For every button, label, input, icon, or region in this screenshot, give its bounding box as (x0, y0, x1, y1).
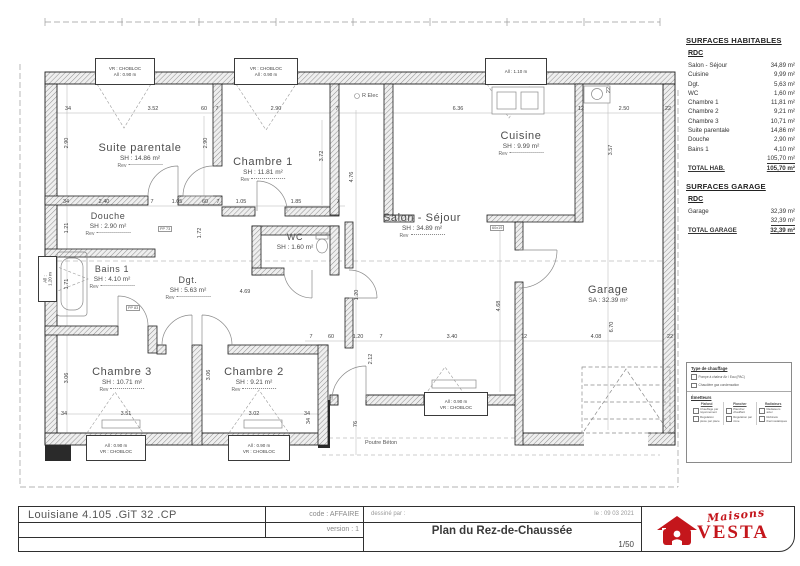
dim-label: 2.90 (64, 138, 70, 149)
house-icon (657, 516, 697, 548)
dim-label: 60 (201, 106, 207, 112)
room-name: Salon - Séjour (383, 212, 461, 224)
rev-label: Rev (241, 177, 250, 183)
rev-label: Rev (499, 151, 508, 157)
dim-label: 1.71 (64, 279, 70, 290)
dim-label: 34 (63, 199, 69, 205)
elec-panel-marker (355, 94, 360, 99)
checkbox-icon (691, 374, 697, 380)
surface-row: Garage32,39 m² (686, 207, 795, 216)
dim-label: 4.69 (240, 289, 251, 295)
room-name: Bains 1 (90, 263, 135, 275)
title-block: Louisiane 4.105 .GiT 32 .CP code : AFFAI… (18, 506, 795, 552)
room-cuisine: Cuisine SH : 9.99 m² Rev (499, 130, 544, 157)
surfaces-floor: RDC (688, 50, 795, 57)
checkbox-icon (726, 408, 732, 414)
room-chambre-1: Chambre 1 SH : 11.81 m² Rev (233, 156, 293, 183)
legend-column: Plafond Chauffage par rayonnement Régula… (691, 402, 720, 425)
dim-label: 7 (336, 199, 339, 205)
window-salon: All : 0.90 m VR : CHOBLOC (424, 392, 488, 416)
room-area: SH : 9.99 m² (499, 143, 544, 150)
window-sill-label: All : 0.90 m (255, 72, 278, 77)
room-area: SA : 32.39 m² (588, 297, 628, 304)
room-area: SH : 1.60 m² (277, 244, 313, 251)
room-chambre-3: Chambre 3 SH : 10.71 m² Rev (92, 366, 152, 393)
checkbox-icon (759, 408, 765, 414)
room-area: SH : 2.90 m² (86, 223, 131, 230)
dim-label: 3.52 (148, 106, 159, 112)
surfaces-title: SURFACES HABITABLES (686, 36, 795, 45)
surfaces-panel: SURFACES HABITABLES RDC Salon - Séjour34… (686, 36, 795, 235)
room-name: Chambre 1 (233, 156, 293, 168)
surface-row: Chambre 111,81 m² (686, 98, 795, 107)
door-tag: PP 83 (126, 305, 140, 311)
dim-label: 2.90 (271, 106, 282, 112)
room-name: Garage (588, 284, 628, 296)
dim-label: 2.12 (368, 354, 374, 365)
dim-label: 3.40 (447, 334, 458, 340)
emitters-title: Émetteurs (691, 395, 787, 400)
room-name: Suite parentale (99, 142, 182, 154)
dim-label: 1.20 (354, 290, 360, 301)
room-degagement: Dgt. SH : 5.63 m² Rev (166, 274, 211, 301)
affair-code: code : AFFAIRE (269, 511, 359, 518)
dim-label: 3.51 (121, 411, 132, 417)
heating-option: Pompe à chaleur Air / Eau (PAC) (691, 374, 787, 380)
rev-label: Rev (100, 387, 109, 393)
dim-label: 22 (665, 106, 671, 112)
room-name: Dgt. (166, 274, 211, 286)
garage-door-opening (584, 431, 648, 447)
surface-row: Salon - Séjour34,89 m² (686, 61, 795, 70)
dim-label: 4.76 (349, 172, 355, 183)
window-sill-label: All : 1.10 m (505, 69, 528, 74)
dim-label: 1.21 (64, 223, 70, 234)
room-wc: WC SH : 1.60 m² (277, 231, 313, 251)
window-sill-label: All : 0.90 m (445, 399, 468, 404)
dim-label: 3.72 (319, 151, 325, 162)
dim-label: 34 (65, 106, 71, 112)
rev-label: Rev (400, 233, 409, 239)
dim-label: 3.02 (249, 411, 260, 417)
garage-surfaces-title: SURFACES GARAGE (686, 182, 795, 191)
dim-label: 2.50 (619, 106, 630, 112)
surfaces-total: TOTAL HAB.105,70 m² (686, 164, 795, 173)
legend-column: Plancher Plancher chauffant Régulation p… (723, 402, 753, 425)
dim-label: 34 (61, 411, 67, 417)
rev-label: Rev (118, 163, 127, 169)
rev-label: Rev (86, 231, 95, 237)
window-shutter-label: VR : CHOBLOC (250, 66, 282, 71)
window-suite: VR : CHOBLOC All : 0.90 m (95, 58, 155, 85)
dim-label: 60 (202, 199, 208, 205)
dim-label: 7 (215, 106, 218, 112)
room-area: SH : 34.89 m² (383, 225, 461, 232)
surface-row: Chambre 310,71 m² (686, 117, 795, 126)
room-area: SH : 9.21 m² (224, 379, 284, 386)
dim-label: 1.05 (236, 199, 247, 205)
dim-label: 3.06 (64, 373, 70, 384)
room-name: Chambre 2 (224, 366, 284, 378)
legend-column: Radiateurs Radiateurs acier Robinets the… (756, 402, 787, 425)
dim-label: 1.72 (197, 228, 203, 239)
window-shutter-label: VR : CHOBLOC (100, 449, 132, 454)
room-area: SH : 11.81 m² (233, 169, 293, 176)
garage-door (582, 367, 670, 433)
window-sill-label: All : 0.90 m (114, 72, 137, 77)
dim-label: 22 (606, 87, 612, 93)
surfaces-subtotal: 105,70 m² (686, 154, 795, 164)
drawn-by-label: dessiné par : (371, 511, 405, 517)
room-name: WC (277, 231, 313, 243)
date-label: le : 09 03 2021 (519, 511, 634, 517)
scale-label: 1/50 (579, 540, 634, 549)
vesta-logo: Maisons VESTA (649, 510, 789, 550)
window-chambre3: All : 0.90 m VR : CHOBLOC (86, 435, 146, 461)
surface-row: Cuisine9,99 m² (686, 70, 795, 79)
version-label: version : 1 (269, 526, 359, 533)
dim-label: 3.06 (206, 370, 212, 381)
room-area: SH : 4.10 m² (90, 276, 135, 283)
surface-row: Bains 14,10 m² (686, 145, 795, 154)
dim-label: 7 (335, 106, 338, 112)
dim-label: 6.36 (453, 106, 464, 112)
surface-row: Chambre 29,21 m² (686, 107, 795, 116)
dim-label: 4.08 (591, 334, 602, 340)
logo-brand-text: VESTA (697, 522, 769, 544)
room-salon-sejour: Salon - Séjour SH : 34.89 m² Rev (383, 212, 461, 239)
room-name: Chambre 3 (92, 366, 152, 378)
dim-label: 4.68 (496, 301, 502, 312)
window-sill-label: All : 0.90 m (248, 443, 271, 448)
dim-label: 76 (353, 421, 359, 427)
surface-row: Dgt.5,63 m² (686, 80, 795, 89)
sheet-title: Plan du Rez-de-Chaussée (363, 525, 641, 537)
room-suite-parentale: Suite parentale SH : 14.86 m² Rev (99, 142, 182, 169)
window-bains: All : 1.20 m (38, 256, 57, 302)
dim-label: 7 (379, 334, 382, 340)
room-douche: Douche SH : 2.90 m² Rev (86, 210, 131, 237)
room-bains-1: Bains 1 SH : 4.10 m² Rev (90, 263, 135, 290)
dim-label: 34 (304, 411, 310, 417)
dim-label: 3.57 (608, 145, 614, 156)
dim-label: 6.70 (609, 322, 615, 333)
heating-option: Chaudière gaz condensation (691, 383, 787, 389)
surface-row: WC1,60 m² (686, 89, 795, 98)
surface-row: Suite parentale14,86 m² (686, 126, 795, 135)
window-chambre2: All : 0.90 m VR : CHOBLOC (228, 435, 290, 461)
kitchen-sink (492, 87, 544, 114)
checkbox-icon (693, 408, 699, 414)
room-area: SH : 14.86 m² (99, 155, 182, 162)
project-name: Louisiane 4.105 .GiT 32 .CP (28, 509, 177, 521)
room-garage: Garage SA : 32.39 m² (588, 284, 628, 304)
garage-surfaces-total: TOTAL GARAGE32,39 m² (686, 226, 795, 235)
bathtub (57, 252, 87, 316)
toilet (316, 233, 328, 253)
garage-surfaces-subtotal: 32,39 m² (686, 216, 795, 226)
door-tag: PP 73 (158, 226, 172, 232)
window-sill-label: All : 0.90 m (105, 443, 128, 448)
window-cuisine: All : 1.10 m (485, 58, 547, 85)
dim-label: 2.90 (203, 138, 209, 149)
room-name: Cuisine (499, 130, 544, 142)
dim-label: 1.85 (291, 199, 302, 205)
dim-label: 22 (667, 334, 673, 340)
room-area: SH : 10.71 m² (92, 379, 152, 386)
dim-label: 7 (216, 199, 219, 205)
garage-surfaces-floor: RDC (688, 196, 795, 203)
rev-label: Rev (166, 295, 175, 301)
dim-label: 1.05 (172, 199, 183, 205)
dim-label: 60 (328, 334, 334, 340)
dim-label: 7 (309, 334, 312, 340)
heating-type-title: Type de chauffage (691, 366, 787, 371)
window-shutter-label: VR : CHOBLOC (109, 66, 141, 71)
rev-label: Rev (90, 284, 99, 290)
window-shutter-label: VR : CHOBLOC (243, 449, 275, 454)
dim-label: 1.20 (353, 334, 364, 340)
rev-label: Rev (232, 387, 241, 393)
floor-plan-sheet: VR : CHOBLOC All : 0.90 m VR : CHOBLOC A… (0, 0, 800, 566)
dim-label: 12 (521, 334, 527, 340)
dim-label: 2.40 (99, 199, 110, 205)
checkbox-icon (693, 416, 699, 422)
room-area: SH : 5.63 m² (166, 287, 211, 294)
dim-label: 12 (578, 106, 584, 112)
heating-legend: Type de chauffage Pompe à chaleur Air / … (686, 362, 792, 463)
checkbox-icon (726, 416, 732, 422)
window-shutter-label: VR : CHOBLOC (440, 405, 472, 410)
concrete-beam-label: Poutre Béton (365, 440, 397, 446)
elec-panel-label: R Elec (362, 93, 378, 99)
checkbox-icon (691, 383, 697, 389)
checkbox-icon (759, 416, 765, 422)
window-chambre1: VR : CHOBLOC All : 0.90 m (234, 58, 298, 85)
room-name: Douche (86, 210, 131, 222)
surface-row: Douche2,90 m² (686, 135, 795, 144)
window-sill-label: All : 1.20 m (43, 271, 53, 288)
dim-label: 7 (150, 199, 153, 205)
door-tag: 60x19 (490, 225, 504, 231)
room-chambre-2: Chambre 2 SH : 9.21 m² Rev (224, 366, 284, 393)
dim-label: 34 (306, 418, 312, 424)
